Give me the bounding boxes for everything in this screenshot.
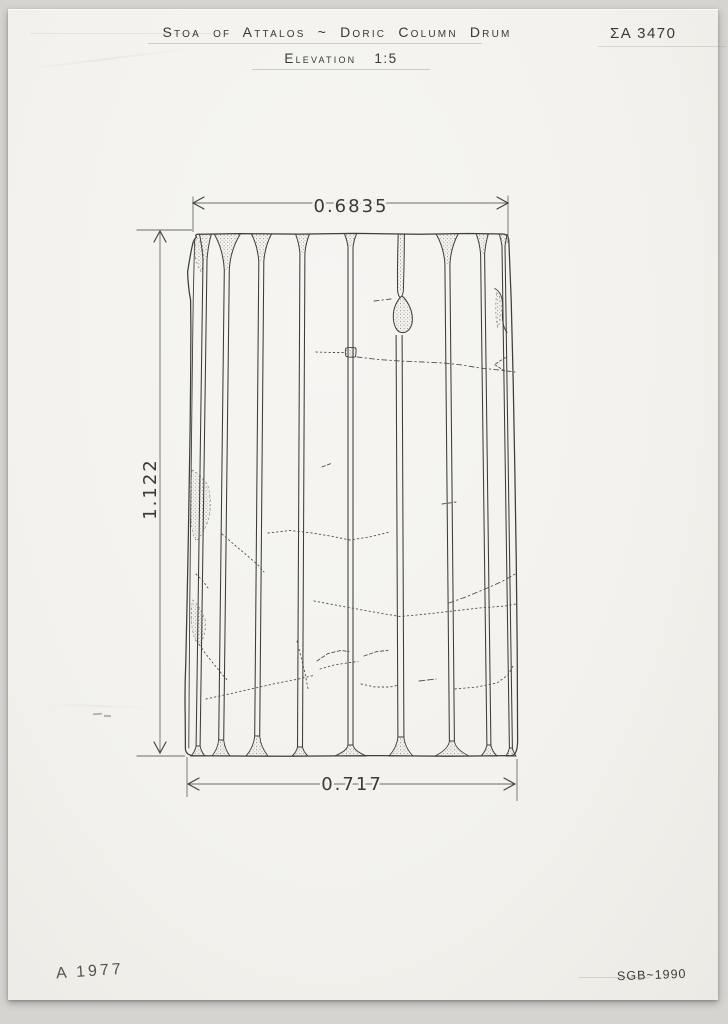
- dimension-labels: 0.6835 0.717 1.122: [140, 196, 388, 795]
- bottom-width-dimension-label: 0.717: [321, 774, 383, 795]
- scanned-sheet-background: Stoa of Attalos ~ Doric Column Drum Elev…: [0, 0, 728, 1024]
- drawing-linework: [137, 196, 518, 802]
- top-width-dimension-label: 0.6835: [314, 196, 389, 217]
- author-date-note: SGB~1990: [617, 967, 687, 983]
- height-dimension-label: 1.122: [140, 458, 161, 520]
- column-drum-elevation-drawing: 0.6835 0.717 1.122: [0, 0, 728, 1024]
